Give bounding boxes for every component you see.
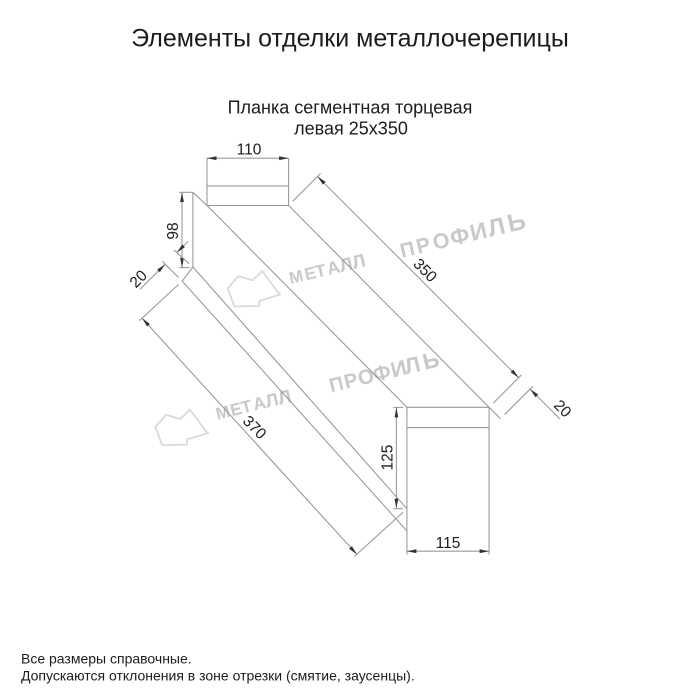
svg-text:98: 98	[165, 222, 182, 239]
svg-text:Планка сегментная торцевая: Планка сегментная торцевая	[228, 97, 473, 117]
svg-text:115: 115	[436, 535, 461, 552]
svg-text:125: 125	[379, 445, 396, 471]
svg-text:110: 110	[237, 142, 262, 159]
svg-text:левая 25х350: левая 25х350	[294, 119, 408, 139]
svg-text:Элементы отделки металлочерепи: Элементы отделки металлочерепицы	[131, 24, 569, 52]
svg-text:Все размеры справочные.: Все размеры справочные.	[21, 651, 192, 667]
svg-text:Допускаются отклонения в зоне: Допускаются отклонения в зоне отрезки (с…	[21, 668, 415, 684]
